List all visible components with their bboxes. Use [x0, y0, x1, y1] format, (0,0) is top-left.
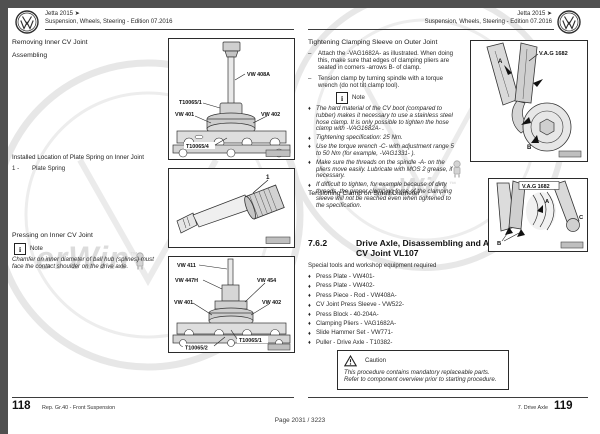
caution-label: Caution — [365, 358, 386, 365]
diamond-bullet: ♦ — [308, 283, 316, 290]
figure-press-removal: VW 408A T10065/1 VW 401 VW 402 T10065/4 — [168, 38, 295, 160]
right-footer-chapter: 7. Drive Axle — [430, 405, 548, 411]
letter-callout: B — [527, 145, 532, 151]
right-header-rule — [308, 29, 554, 30]
letter-callout: B — [497, 241, 501, 247]
pressing-heading: Pressing on Inner CV Joint — [12, 232, 93, 239]
tool-item: ♦Press Piece - Rod - VW408A- — [308, 293, 488, 300]
letter-callout: A — [498, 59, 503, 65]
tool-item: ♦Puller - Drive Axle - T10382- — [308, 340, 488, 347]
left-page-header: Jetta 2015 ➤ Suspension, Wheels, Steerin… — [45, 11, 172, 27]
caution-box: Caution This procedure contains mandator… — [337, 350, 509, 390]
dash-bullet: – — [308, 51, 318, 71]
step-item: – Tension clamp by turning spindle with … — [308, 76, 460, 90]
left-page-number: 118 — [12, 400, 31, 412]
header-manual-line: Suspension, Wheels, Steering - Edition 0… — [330, 19, 552, 27]
tightening-heading: Tightening Clamping Sleeve on Outer Join… — [308, 39, 460, 46]
tool-item: ♦Press Block - 40-204A- — [308, 312, 488, 319]
legend-item: 1 - Plate Spring — [12, 166, 162, 173]
tool-label: T10065/4 — [186, 144, 209, 150]
tool-label: V.A.G 1682 — [539, 51, 568, 57]
assembling-heading: Assembling — [12, 52, 47, 59]
legend-number: 1 - — [12, 166, 32, 173]
note-item: ♦ Tightening specification: 25 Nm. — [308, 135, 460, 142]
figure-id-box — [266, 237, 290, 244]
note-header: i Note — [14, 243, 43, 255]
vw-logo-icon — [557, 10, 581, 34]
tool-item: ♦Slide Hammer Set - VW771- — [308, 330, 488, 337]
tool-label: VW 402 — [262, 300, 281, 306]
step-item: – Attach the -VAG1682A- as illustrated. … — [308, 51, 460, 71]
right-footer-rule — [308, 397, 588, 398]
right-page-header: Jetta 2015 ➤ Suspension, Wheels, Steerin… — [330, 11, 552, 27]
tool-label: VW 408A — [247, 72, 270, 78]
tool-label: VW 402 — [261, 112, 280, 118]
tools-list: ♦Press Plate - VW401- ♦Press Plate - VW4… — [308, 274, 488, 349]
caution-header: Caution — [344, 355, 502, 367]
note-header: i Note — [336, 92, 365, 104]
header-model-line: Jetta 2015 ➤ — [330, 11, 552, 19]
diamond-bullet: ♦ — [308, 340, 316, 347]
diamond-bullet: ♦ — [308, 274, 316, 281]
tool-label: VW 401 — [175, 112, 194, 118]
callout-number: 1 — [266, 174, 270, 181]
note-icon: i — [336, 92, 348, 104]
diamond-bullet: ♦ — [308, 135, 316, 142]
diamond-bullet: ♦ — [308, 144, 316, 158]
window-edge-top — [0, 0, 600, 8]
header-manual-line: Suspension, Wheels, Steering - Edition 0… — [45, 19, 172, 27]
tool-item: ♦CV Joint Press Sleeve - VW522- — [308, 302, 488, 309]
note-text: Chamfer on inner diameter of ball hub (s… — [12, 257, 164, 271]
note-label: Note — [352, 95, 365, 102]
tool-item: ♦Press Plate - VW402- — [308, 283, 488, 290]
note-item: ♦ Use the torque wrench -C- with adjustm… — [308, 144, 460, 158]
letter-callout: C — [579, 215, 584, 221]
diamond-bullet: ♦ — [308, 330, 316, 337]
diamond-bullet: ♦ — [308, 160, 316, 180]
tool-label: V.A.G 1682 — [522, 184, 550, 190]
diamond-bullet: ♦ — [308, 302, 316, 309]
figure-id-box — [266, 150, 290, 157]
left-footer-rule — [12, 397, 294, 398]
tool-label: VW 401 — [174, 300, 193, 306]
note-icon: i — [14, 243, 26, 255]
caution-icon — [344, 355, 357, 367]
tool-label: T10065/1 — [179, 100, 202, 106]
step-text: Tension clamp by turning spindle with a … — [318, 76, 460, 90]
tool-item: ♦Press Plate - VW401- — [308, 274, 488, 281]
tool-label: VW 454 — [257, 278, 276, 284]
tools-intro: Special tools and workshop equipment req… — [308, 263, 488, 270]
window-edge-left — [0, 0, 8, 434]
legend-label: Plate Spring — [32, 166, 65, 173]
header-model-line: Jetta 2015 ➤ — [45, 11, 172, 19]
note-label: Note — [30, 246, 43, 253]
figure-id-box — [559, 151, 581, 157]
note-item: ♦ The hard material of the CV boot (comp… — [308, 106, 460, 133]
left-footer-chapter: Rep. Gr.40 - Front Suspension — [42, 405, 115, 411]
removing-heading: Removing Inner CV Joint — [12, 39, 88, 46]
figure-id-box — [268, 344, 290, 350]
vw-logo-icon — [15, 10, 39, 34]
caution-text: This procedure contains mandatory replac… — [344, 370, 502, 384]
dash-bullet: – — [308, 76, 318, 90]
viewer-page-indicator: Page 2031 / 3223 — [0, 417, 600, 424]
diamond-bullet: ♦ — [308, 106, 316, 133]
diamond-bullet: ♦ — [308, 312, 316, 319]
figure-press-install: VW 411 VW 447H VW 454 VW 401 VW 402 T100… — [168, 256, 295, 353]
left-header-rule — [45, 29, 294, 30]
installed-location-heading: Installed Location of Plate Spring on In… — [12, 154, 167, 161]
section-number: 7.6.2 — [308, 238, 356, 258]
tool-label: T10065/2 — [185, 346, 208, 352]
figure-plate-spring: 1 — [168, 168, 295, 248]
tool-label: VW 411 — [177, 263, 196, 269]
tool-label: VW 447H — [175, 278, 198, 284]
tool-label: T10065/1 — [239, 338, 262, 344]
diamond-bullet: ♦ — [308, 321, 316, 328]
figure-small-clamp: V.A.G 1682 A B C — [488, 178, 588, 252]
tool-item: ♦Clamping Pliers - VAG1682A- — [308, 321, 488, 328]
step-text: Attach the -VAG1682A- as illustrated. Wh… — [318, 51, 460, 71]
note-item: ♦ Make sure the threads on the spindle -… — [308, 160, 460, 180]
right-page-number: 119 — [554, 400, 573, 412]
figure-outer-clamp: V.A.G 1682 A B — [470, 40, 588, 162]
tensioning-heading: Tensioning Clamp on Small Diameter — [308, 190, 468, 197]
diamond-bullet: ♦ — [308, 293, 316, 300]
figure-id-box — [561, 242, 583, 248]
